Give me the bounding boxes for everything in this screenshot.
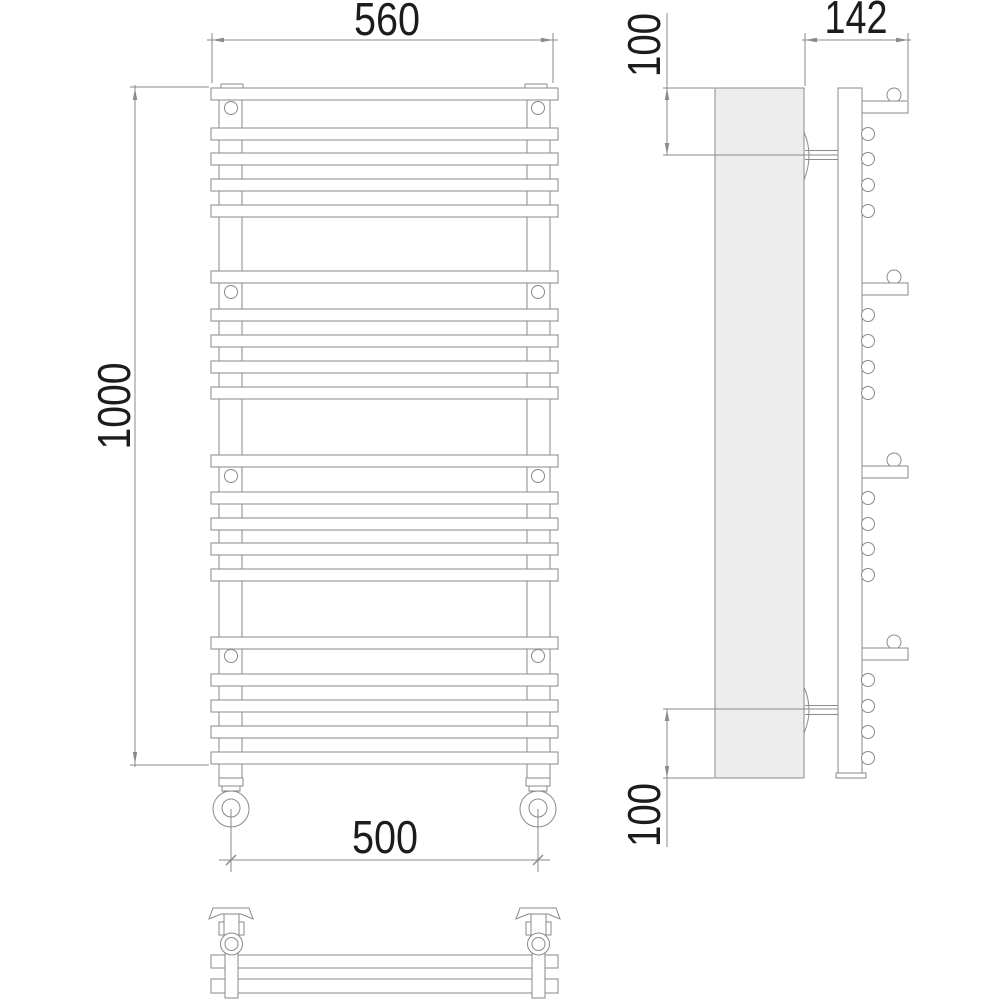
side-panel (715, 88, 804, 778)
anchor-bar-end (887, 270, 901, 284)
wall-screw-top (804, 132, 838, 180)
bar-end-circle (862, 153, 875, 166)
towel-bar (211, 674, 558, 686)
bar-end-circle (862, 726, 875, 739)
towel-bar (211, 271, 558, 283)
bar-end-circle (862, 128, 875, 141)
dimension-142: 142 (802, 0, 911, 100)
towel-bar (211, 205, 558, 217)
anchor-bar-end (887, 453, 901, 467)
dimension-560: 560 (207, 0, 558, 83)
bar-end-circle (862, 335, 875, 348)
bar-end-circle (862, 518, 875, 531)
towel-bar (211, 492, 558, 504)
towel-bar (211, 543, 558, 555)
dim-label-width: 560 (354, 0, 420, 45)
towel-bar (211, 726, 558, 738)
wall-bracket-arm (862, 466, 908, 478)
wall-screw-bottom (804, 687, 838, 733)
bar-end-circle (862, 361, 875, 374)
anchor-bar-end (887, 635, 901, 649)
bar-end-circle (862, 387, 875, 400)
dim-label-bottom-offset: 100 (618, 783, 670, 847)
bar-end-circle (862, 700, 875, 713)
towel-bar (211, 179, 558, 191)
towel-bar (211, 335, 558, 347)
mounting-screw (225, 650, 238, 663)
wall-bracket-arm (862, 648, 908, 660)
towel-bar (211, 637, 558, 649)
dimension-500: 500 (219, 809, 550, 872)
towel-bar (211, 700, 558, 712)
side-view (715, 88, 908, 778)
towel-bar (211, 128, 558, 140)
towel-bar (211, 752, 558, 764)
bar-end-circle (862, 569, 875, 582)
front-view (211, 84, 558, 827)
bar-end-circle (862, 205, 875, 218)
top-view-bar-front (211, 955, 558, 968)
towel-bar (211, 518, 558, 530)
towel-bar (211, 309, 558, 321)
mounting-screw (225, 286, 238, 299)
top-view (209, 908, 560, 998)
towel-bar (211, 569, 558, 581)
side-rail-foot (836, 773, 866, 778)
towel-bar (211, 455, 558, 467)
dim-label-top-offset: 100 (618, 13, 670, 77)
bar-end-circle (862, 543, 875, 556)
bar-end-circle (862, 179, 875, 192)
towel-bar (211, 361, 558, 373)
bar-end-circle (862, 309, 875, 322)
dim-label-valve-spacing: 500 (352, 811, 418, 863)
wall-bracket-arm (862, 283, 908, 295)
mounting-screw (225, 102, 238, 115)
side-rail-tube (838, 88, 862, 773)
top-shelf-bar (211, 88, 558, 100)
mounting-screw (532, 470, 545, 483)
wall-bracket-arm (862, 101, 908, 113)
bar-end-circle (862, 674, 875, 687)
technical-drawing-page: 560 1000 500 142 100 (0, 0, 1000, 1000)
dim-label-depth: 142 (825, 0, 888, 43)
anchor-bar-end (887, 88, 901, 102)
mounting-screw (532, 102, 545, 115)
bar-end-circle (862, 492, 875, 505)
dimension-1000: 1000 (88, 85, 209, 767)
mounting-screw (532, 650, 545, 663)
towel-bar (211, 153, 558, 165)
bar-end-circle (862, 752, 875, 765)
mounting-screw (532, 286, 545, 299)
top-view-bar-rear (211, 979, 558, 993)
dim-label-height: 1000 (88, 363, 140, 450)
mounting-screw (225, 470, 238, 483)
towel-bar (211, 387, 558, 399)
towel-rail-drawing: 560 1000 500 142 100 (0, 0, 1000, 1000)
